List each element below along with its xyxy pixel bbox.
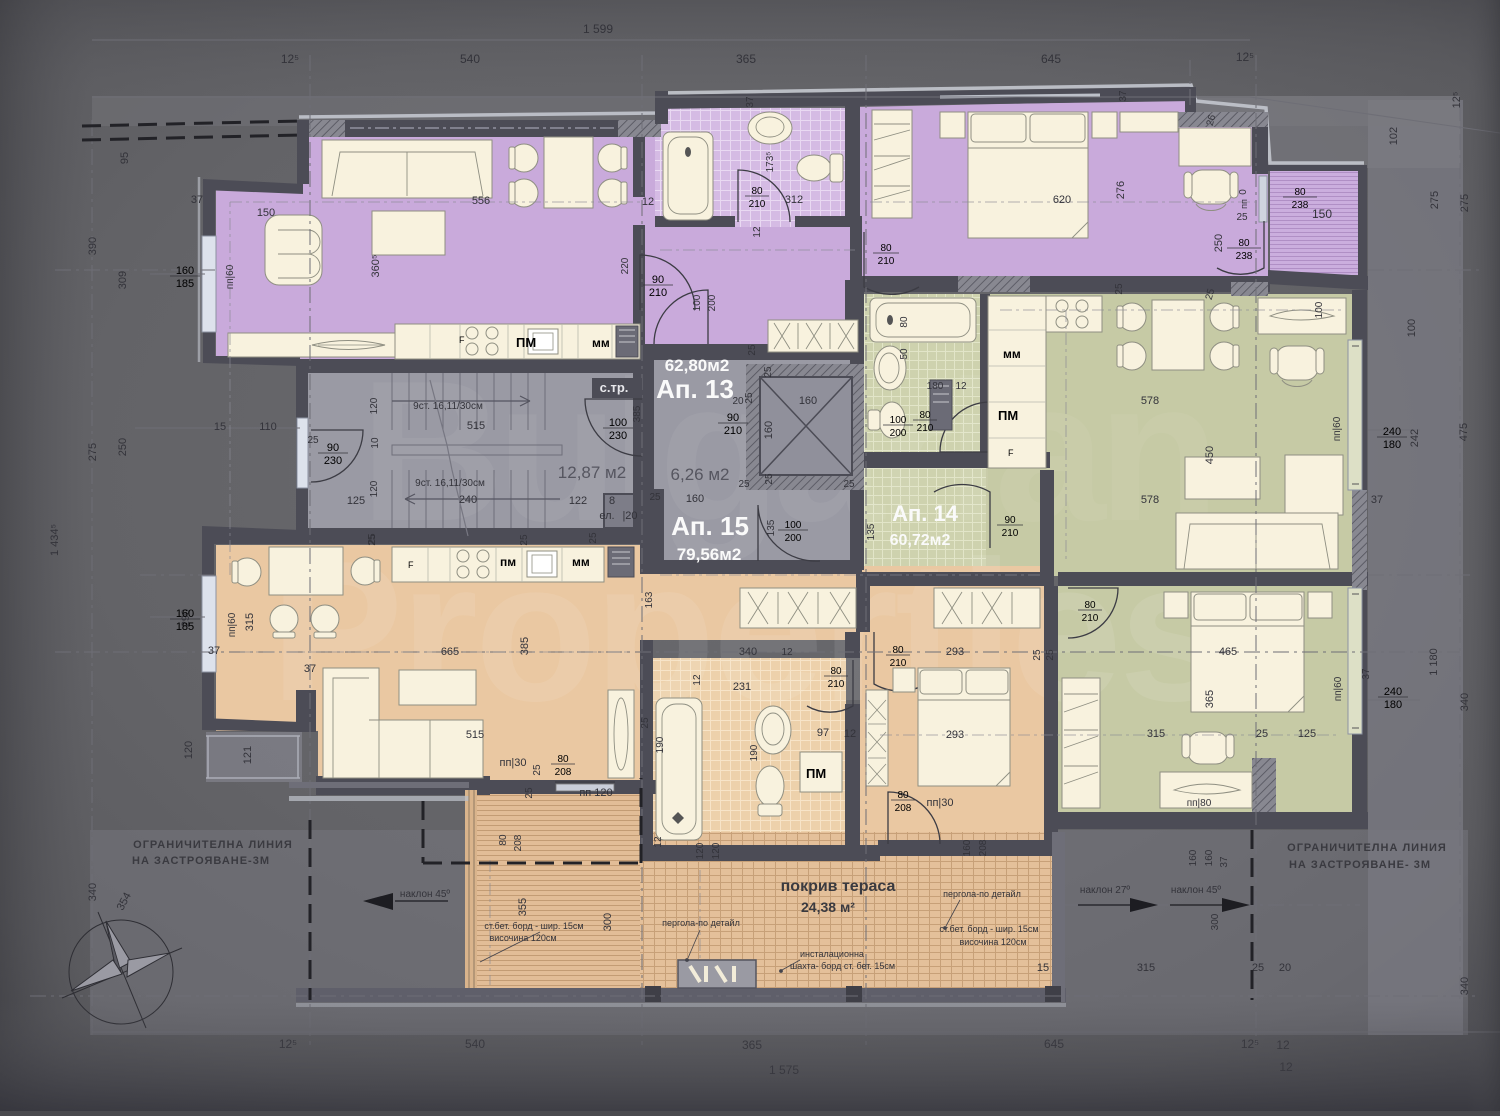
svg-text:37: 37 (1118, 90, 1129, 102)
svg-text:200: 200 (785, 533, 802, 544)
svg-text:ОГРАНИЧИТЕЛНА ЛИНИЯ: ОГРАНИЧИТЕЛНА ЛИНИЯ (133, 839, 293, 851)
svg-text:125: 125 (347, 495, 365, 507)
svg-text:160: 160 (686, 493, 704, 505)
svg-text:50: 50 (899, 348, 910, 360)
svg-text:25: 25 (588, 532, 599, 544)
svg-text:242: 242 (1409, 429, 1421, 447)
svg-text:276: 276 (1115, 181, 1127, 199)
svg-text:120: 120 (369, 397, 380, 414)
svg-text:645: 645 (1041, 52, 1061, 66)
svg-text:12: 12 (844, 728, 856, 740)
svg-text:122: 122 (569, 495, 587, 507)
svg-text:300: 300 (1210, 913, 1221, 930)
svg-text:10: 10 (370, 437, 381, 449)
svg-text:25: 25 (763, 366, 774, 378)
svg-text:208: 208 (978, 839, 989, 856)
svg-text:пп|60: пп|60 (225, 264, 236, 289)
svg-text:120: 120 (369, 480, 380, 497)
svg-text:ел.: ел. (599, 510, 614, 522)
svg-text:ст.бет. борд - шир. 15см: ст.бет. борд - шир. 15см (939, 924, 1038, 934)
svg-text:НА ЗАСТРОЯВАНЕ- 3М: НА ЗАСТРОЯВАНЕ- 3М (1289, 859, 1431, 871)
svg-text:25: 25 (1114, 283, 1125, 295)
svg-text:мм: мм (572, 555, 590, 569)
svg-text:578: 578 (1141, 494, 1159, 506)
svg-text:15: 15 (1037, 962, 1049, 974)
svg-text:160: 160 (176, 265, 194, 277)
svg-text:180: 180 (927, 381, 944, 392)
svg-text:80: 80 (899, 316, 910, 328)
svg-text:37: 37 (1361, 668, 1372, 680)
svg-text:с.тр.: с.тр. (600, 380, 629, 395)
svg-text:25: 25 (649, 492, 661, 503)
svg-text:12: 12 (642, 196, 654, 208)
svg-text:25: 25 (1236, 212, 1248, 223)
svg-text:173⁵: 173⁵ (765, 152, 776, 173)
svg-text:80: 80 (751, 186, 763, 197)
svg-text:220: 220 (620, 257, 631, 274)
svg-text:ПМ: ПМ (806, 766, 826, 781)
svg-text:12: 12 (781, 647, 793, 658)
svg-text:340: 340 (87, 883, 99, 901)
svg-text:180: 180 (1384, 699, 1402, 711)
svg-text:90: 90 (327, 442, 339, 454)
svg-text:340: 340 (739, 646, 757, 658)
svg-text:пергола-по детайл: пергола-по детайл (943, 889, 1021, 899)
svg-text:12: 12 (752, 226, 763, 238)
svg-text:20: 20 (1279, 962, 1291, 974)
svg-text:80: 80 (1294, 187, 1306, 198)
svg-text:пп 120: пп 120 (579, 787, 612, 799)
svg-text:мм: мм (592, 336, 610, 350)
svg-text:385: 385 (519, 637, 531, 655)
svg-text:180: 180 (1383, 439, 1401, 451)
svg-text:височина 120см: височина 120см (959, 937, 1026, 947)
svg-text:80: 80 (880, 243, 892, 254)
svg-text:25: 25 (532, 764, 543, 776)
svg-text:15: 15 (214, 421, 226, 433)
svg-text:100: 100 (1314, 301, 1325, 318)
svg-text:мм: мм (1003, 347, 1021, 361)
svg-text:250: 250 (117, 438, 129, 456)
svg-text:24,38 м²: 24,38 м² (801, 899, 855, 915)
svg-text:230: 230 (609, 430, 627, 442)
svg-text:210: 210 (749, 199, 766, 210)
svg-text:1 599: 1 599 (583, 22, 613, 36)
svg-text:210: 210 (917, 423, 934, 434)
svg-text:90: 90 (652, 274, 664, 286)
svg-text:ст.бет. борд - шир. 15см: ст.бет. борд - шир. 15см (484, 921, 583, 931)
svg-text:275: 275 (1429, 191, 1441, 209)
svg-text:160: 160 (799, 395, 817, 407)
svg-text:ОГРАНИЧИТЕЛНА ЛИНИЯ: ОГРАНИЧИТЕЛНА ЛИНИЯ (1287, 842, 1447, 854)
svg-text:инсталационна: инсталационна (800, 949, 864, 959)
svg-text:наклон 45º: наклон 45º (1171, 885, 1222, 896)
svg-text:ПМ: ПМ (516, 335, 536, 350)
svg-text:135: 135 (766, 519, 777, 536)
svg-text:100: 100 (1406, 319, 1418, 337)
svg-text:наклон 45º: наклон 45º (400, 889, 451, 900)
svg-text:12⁵: 12⁵ (1236, 50, 1254, 64)
svg-text:97: 97 (817, 727, 829, 739)
svg-text:100: 100 (692, 294, 703, 311)
svg-text:ПМ: ПМ (998, 408, 1018, 423)
svg-text:25: 25 (640, 717, 651, 729)
svg-text:Ап. 13: Ап. 13 (656, 374, 734, 404)
svg-text:293: 293 (946, 646, 964, 658)
svg-text:210: 210 (649, 287, 667, 299)
svg-text:9ст. 16,11/30см: 9ст. 16,11/30см (413, 401, 483, 412)
svg-text:95: 95 (119, 152, 131, 164)
svg-text:37: 37 (304, 663, 316, 675)
svg-text:F: F (1008, 448, 1014, 458)
svg-text:80: 80 (897, 790, 909, 801)
svg-text:шахта- борд ст. бет. 15см: шахта- борд ст. бет. 15см (790, 961, 895, 971)
svg-text:80: 80 (919, 410, 931, 421)
svg-text:102: 102 (1388, 127, 1400, 145)
svg-text:120: 120 (695, 842, 706, 859)
svg-text:160: 160 (962, 839, 973, 856)
svg-text:25: 25 (1256, 728, 1268, 740)
svg-text:пп|30: пп|30 (499, 757, 526, 769)
svg-text:12: 12 (692, 674, 703, 686)
svg-text:25: 25 (764, 473, 775, 485)
svg-text:365: 365 (1204, 690, 1216, 708)
svg-text:210: 210 (1082, 613, 1099, 624)
svg-text:25: 25 (738, 479, 750, 490)
svg-text:25: 25 (519, 534, 530, 546)
svg-text:пп|60: пп|60 (1333, 676, 1344, 701)
svg-text:25: 25 (1045, 649, 1056, 661)
svg-text:6,26 м2: 6,26 м2 (671, 465, 730, 484)
svg-text:12,87 м2: 12,87 м2 (558, 463, 626, 482)
svg-text:80: 80 (557, 754, 569, 765)
svg-text:275: 275 (87, 443, 99, 461)
svg-text:120: 120 (711, 842, 722, 859)
svg-text:37: 37 (191, 194, 203, 206)
svg-text:80: 80 (830, 666, 842, 677)
svg-text:80: 80 (892, 645, 904, 656)
svg-text:450: 450 (1204, 446, 1216, 464)
svg-text:578: 578 (1141, 395, 1159, 407)
svg-text:100: 100 (609, 417, 627, 429)
svg-text:пп|60: пп|60 (227, 612, 238, 637)
svg-text:121: 121 (242, 746, 254, 764)
svg-text:200: 200 (707, 294, 718, 311)
svg-text:208: 208 (895, 803, 912, 814)
svg-text:пп|60: пп|60 (1332, 416, 1343, 441)
svg-text:160: 160 (1204, 849, 1215, 866)
svg-text:пп|80: пп|80 (1187, 798, 1212, 809)
svg-text:125: 125 (1298, 728, 1316, 740)
svg-text:25: 25 (747, 344, 758, 356)
svg-text:37: 37 (745, 96, 756, 108)
svg-text:12: 12 (955, 381, 967, 392)
svg-text:210: 210 (828, 679, 845, 690)
svg-text:150: 150 (1312, 207, 1332, 221)
svg-text:210: 210 (724, 425, 742, 437)
svg-text:0: 0 (1238, 189, 1249, 195)
svg-text:Ап. 15: Ап. 15 (671, 511, 749, 541)
svg-text:240: 240 (1384, 686, 1402, 698)
svg-text:515: 515 (466, 729, 484, 741)
svg-text:25: 25 (1252, 962, 1264, 974)
svg-text:F: F (408, 560, 414, 570)
svg-text:240: 240 (459, 494, 477, 506)
svg-text:37: 37 (1219, 856, 1230, 868)
svg-text:540: 540 (460, 52, 480, 66)
svg-text:79,56м2: 79,56м2 (677, 545, 742, 564)
svg-text:височина 120см: височина 120см (489, 933, 556, 943)
svg-text:8: 8 (609, 495, 615, 507)
svg-text:135: 135 (866, 523, 877, 540)
svg-text:365: 365 (736, 52, 756, 66)
svg-text:F: F (459, 335, 465, 345)
svg-text:355: 355 (517, 898, 529, 916)
svg-text:160: 160 (763, 421, 775, 439)
svg-text:300: 300 (602, 913, 614, 931)
svg-text:25: 25 (843, 479, 855, 490)
svg-text:238: 238 (1236, 251, 1253, 262)
svg-text:315: 315 (1137, 962, 1155, 974)
svg-text:360⁵: 360⁵ (370, 255, 382, 278)
svg-text:150: 150 (257, 207, 275, 219)
svg-text:покрив тераса: покрив тераса (781, 878, 896, 895)
svg-text:238: 238 (1292, 200, 1309, 211)
svg-text:312: 312 (785, 194, 803, 206)
svg-text:208: 208 (555, 767, 572, 778)
svg-text:пп|30: пп|30 (926, 797, 953, 809)
svg-text:120: 120 (183, 741, 195, 759)
svg-text:208: 208 (513, 834, 524, 851)
svg-text:110: 110 (259, 421, 277, 433)
svg-text:100: 100 (785, 520, 802, 531)
svg-text:25: 25 (307, 435, 319, 446)
svg-text:190: 190 (655, 736, 666, 753)
svg-text:25: 25 (744, 392, 755, 404)
svg-text:240: 240 (1383, 426, 1401, 438)
svg-text:315: 315 (244, 613, 256, 631)
svg-text:90: 90 (727, 412, 739, 424)
svg-text:230: 230 (324, 455, 342, 467)
svg-text:62,80м2: 62,80м2 (665, 356, 730, 375)
svg-text:пп: пп (1239, 199, 1249, 209)
svg-text:185: 185 (176, 278, 194, 290)
svg-text:12⁵: 12⁵ (281, 52, 299, 66)
svg-text:80: 80 (498, 834, 509, 846)
svg-text:160: 160 (176, 608, 194, 620)
svg-text:390: 390 (87, 237, 99, 255)
svg-text:185: 185 (176, 621, 194, 633)
svg-text:наклон 27º: наклон 27º (1080, 885, 1131, 896)
svg-text:20: 20 (732, 396, 744, 407)
svg-text:пм: пм (500, 555, 516, 569)
svg-text:210: 210 (1002, 528, 1019, 539)
svg-text:37: 37 (1371, 494, 1383, 506)
svg-text:пергола-по детайл: пергола-по детайл (662, 918, 740, 928)
svg-text:231: 231 (733, 681, 751, 693)
svg-text:665: 665 (441, 646, 459, 658)
svg-text:37: 37 (208, 645, 220, 657)
svg-text:160: 160 (1188, 849, 1199, 866)
svg-text:25: 25 (1032, 649, 1043, 661)
svg-text:163: 163 (644, 591, 655, 608)
svg-text:620: 620 (1053, 194, 1071, 206)
svg-text:Ап. 14: Ап. 14 (892, 501, 959, 526)
svg-text:210: 210 (890, 658, 907, 669)
svg-text:12⁵: 12⁵ (1451, 92, 1463, 109)
svg-text:80: 80 (1084, 600, 1096, 611)
svg-text:210: 210 (878, 256, 895, 267)
svg-text:315: 315 (1147, 728, 1165, 740)
svg-text:309: 309 (117, 271, 129, 289)
svg-text:556: 556 (472, 195, 490, 207)
svg-text:465: 465 (1219, 646, 1237, 658)
svg-text:100: 100 (890, 415, 907, 426)
svg-text:60,72м2: 60,72м2 (890, 532, 951, 549)
svg-text:12: 12 (653, 836, 664, 848)
svg-text:385: 385 (632, 405, 643, 422)
svg-text:200: 200 (890, 428, 907, 439)
svg-text:293: 293 (946, 729, 964, 741)
svg-text:90: 90 (1004, 515, 1016, 526)
svg-text:250: 250 (1213, 234, 1225, 252)
svg-text:|20: |20 (622, 510, 637, 522)
svg-text:НА ЗАСТРОЯВАНЕ-3М: НА ЗАСТРОЯВАНЕ-3М (132, 855, 270, 867)
svg-text:190: 190 (749, 744, 760, 761)
svg-text:1 180: 1 180 (1428, 648, 1440, 676)
svg-text:9ст. 16,11/30см: 9ст. 16,11/30см (415, 478, 485, 489)
svg-text:25: 25 (367, 534, 378, 546)
svg-text:25: 25 (524, 787, 535, 799)
svg-text:80: 80 (1238, 238, 1250, 249)
svg-text:515: 515 (467, 420, 485, 432)
svg-text:1 434⁵: 1 434⁵ (49, 524, 61, 556)
